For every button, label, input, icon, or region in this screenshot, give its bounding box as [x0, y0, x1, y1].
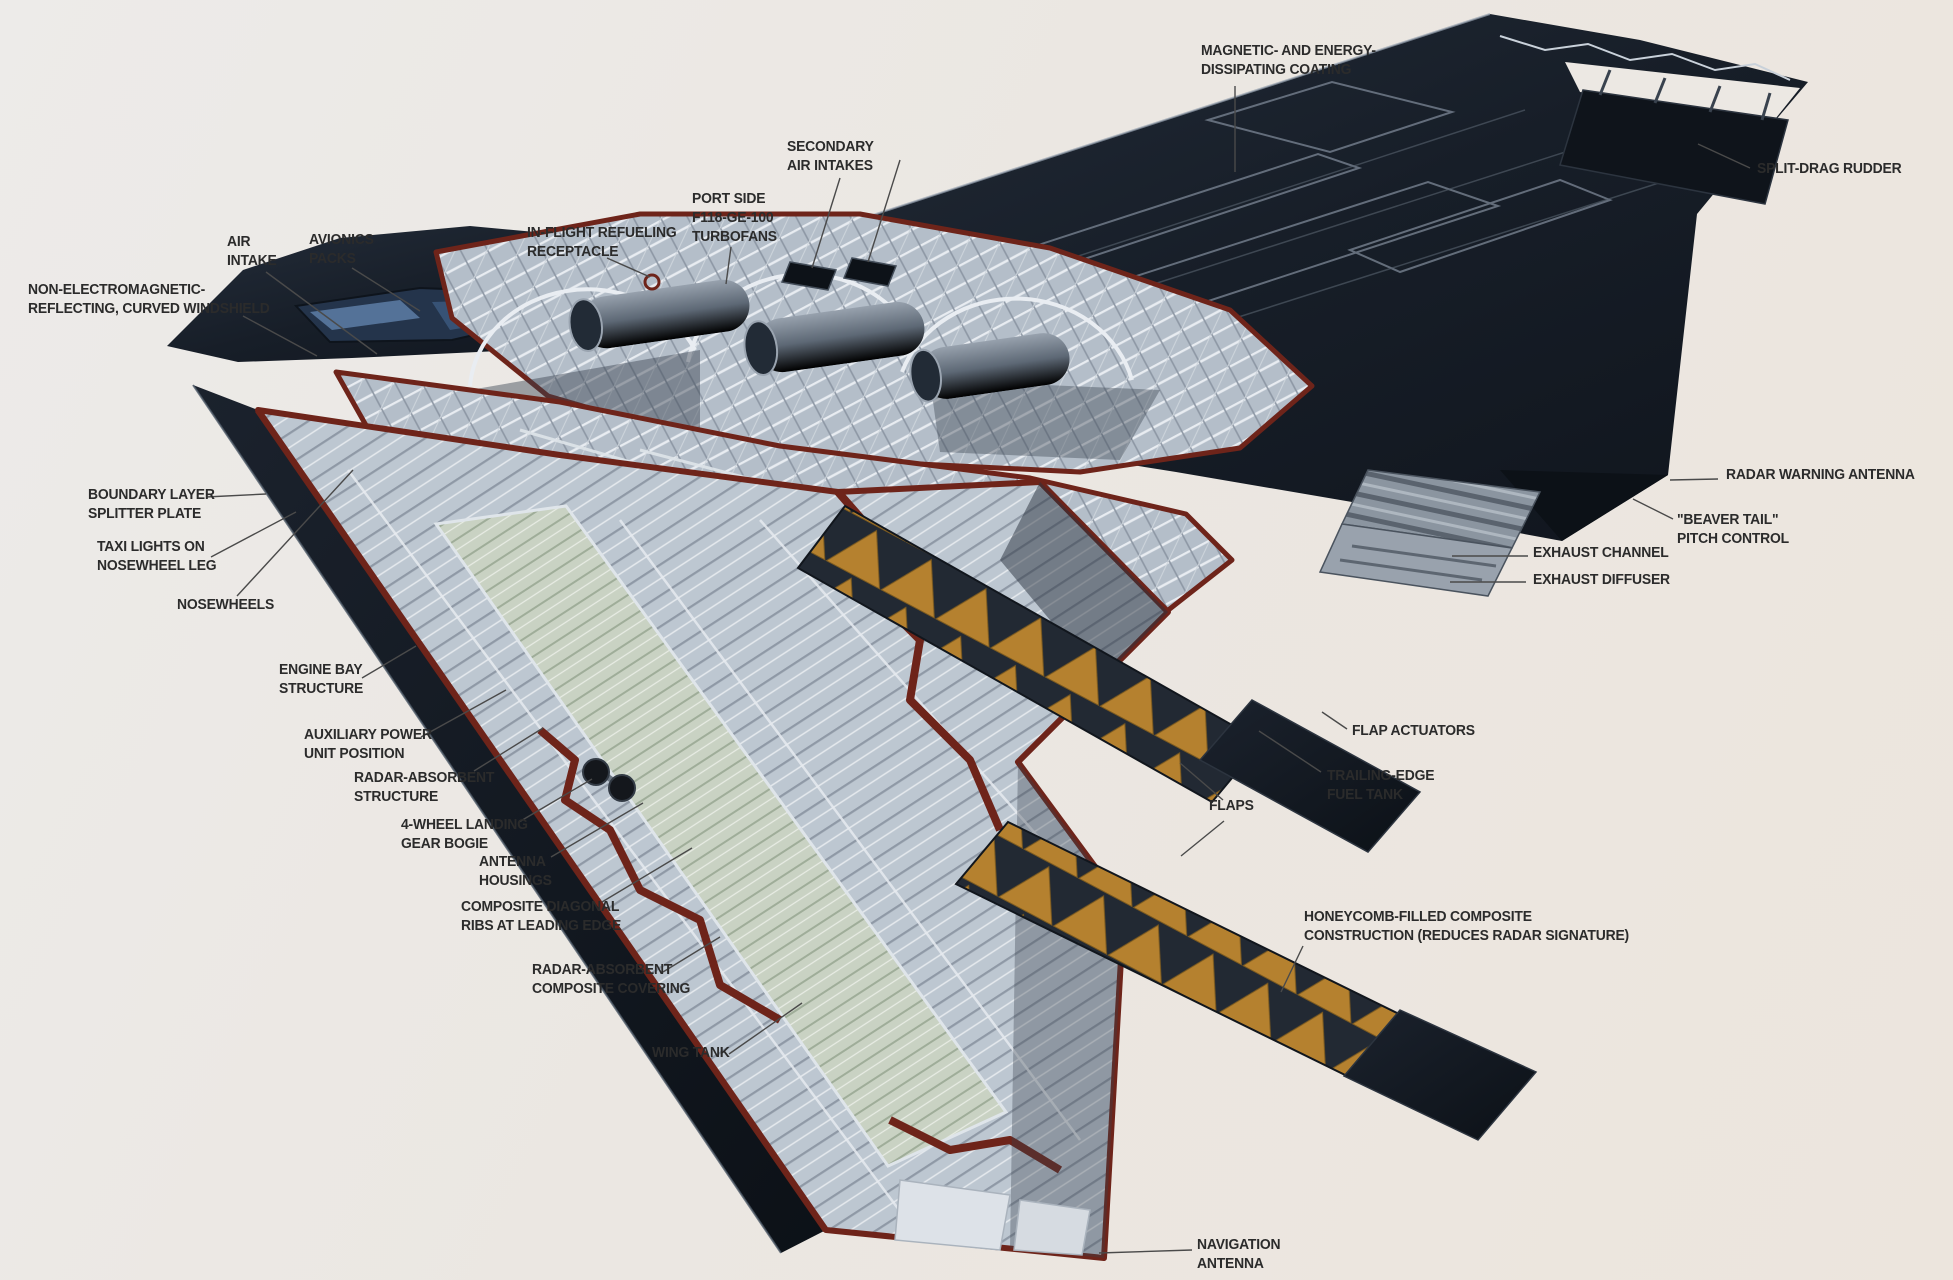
label-avionics-packs: AVIONICS PACKS: [309, 231, 374, 269]
label-engine-bay: ENGINE BAY STRUCTURE: [279, 661, 363, 699]
label-flap-actuators: FLAP ACTUATORS: [1352, 722, 1475, 741]
label-inflight-refueling: IN-FLIGHT REFUELING RECEPTACLE: [527, 224, 676, 262]
label-radar-absorbent-structure: RADAR-ABSORBENT STRUCTURE: [354, 769, 494, 807]
leader-navigation-antenna: [1099, 1250, 1192, 1253]
near-wing: [193, 385, 1168, 1258]
label-wing-tank: WING TANK: [652, 1044, 730, 1063]
label-taxi-lights: TAXI LIGHTS ON NOSEWHEEL LEG: [97, 538, 216, 576]
label-air-intake: AIR INTAKE: [227, 233, 277, 271]
label-antenna-housings: ANTENNA HOUSINGS: [479, 853, 552, 891]
label-magnetic-coating: MAGNETIC- AND ENERGY- DISSIPATING COATIN…: [1201, 42, 1376, 80]
label-nosewheels: NOSEWHEELS: [177, 596, 274, 615]
label-flaps: FLAPS: [1209, 797, 1254, 816]
label-navigation-antenna: NAVIGATION ANTENNA: [1197, 1236, 1280, 1274]
leader-taxi-lights: [211, 512, 296, 557]
label-beaver-tail: "BEAVER TAIL" PITCH CONTROL: [1677, 511, 1789, 549]
leader-flap-actuators: [1322, 712, 1347, 729]
label-secondary-air-intakes: SECONDARY AIR INTAKES: [787, 138, 874, 176]
label-radar-warning-antenna: RADAR WARNING ANTENNA: [1726, 466, 1915, 485]
label-boundary-layer: BOUNDARY LAYER SPLITTER PLATE: [88, 486, 215, 524]
label-composite-ribs: COMPOSITE DIAGONAL RIBS AT LEADING EDGE: [461, 898, 621, 936]
label-landing-gear-bogie: 4-WHEEL LANDING GEAR BOGIE: [401, 816, 528, 854]
leader-boundary-layer: [206, 494, 266, 497]
label-exhaust-channel: EXHAUST CHANNEL: [1533, 544, 1669, 563]
label-windshield: NON-ELECTROMAGNETIC- REFLECTING, CURVED …: [28, 281, 270, 319]
label-split-drag-rudder: SPLIT-DRAG RUDDER: [1757, 160, 1901, 179]
leader-flaps-lower: [1181, 821, 1224, 856]
leader-beaver-tail: [1633, 499, 1673, 519]
label-exhaust-diffuser: EXHAUST DIFFUSER: [1533, 571, 1670, 590]
label-honeycomb: HONEYCOMB-FILLED COMPOSITE CONSTRUCTION …: [1304, 908, 1629, 946]
label-port-side-turbofans: PORT SIDE F118-GE-100 TURBOFANS: [692, 190, 777, 247]
label-rac-covering: RADAR-ABSORBENT COMPOSITE COVERING: [532, 961, 690, 999]
aircraft-illustration: [0, 0, 1953, 1280]
label-apu: AUXILIARY POWER UNIT POSITION: [304, 726, 432, 764]
leader-radar-warning: [1670, 479, 1718, 480]
cutaway-diagram: MAGNETIC- AND ENERGY- DISSIPATING COATIN…: [0, 0, 1953, 1280]
label-trailing-edge-fuel-tank: TRAILING-EDGE FUEL TANK: [1327, 767, 1434, 805]
